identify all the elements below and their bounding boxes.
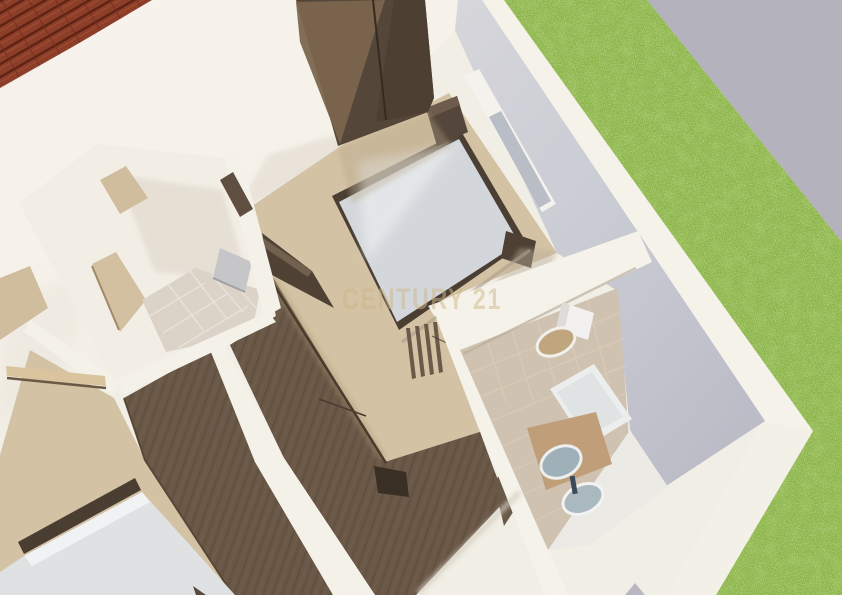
svg-text:CENTURY 21: CENTURY 21 — [342, 282, 502, 315]
